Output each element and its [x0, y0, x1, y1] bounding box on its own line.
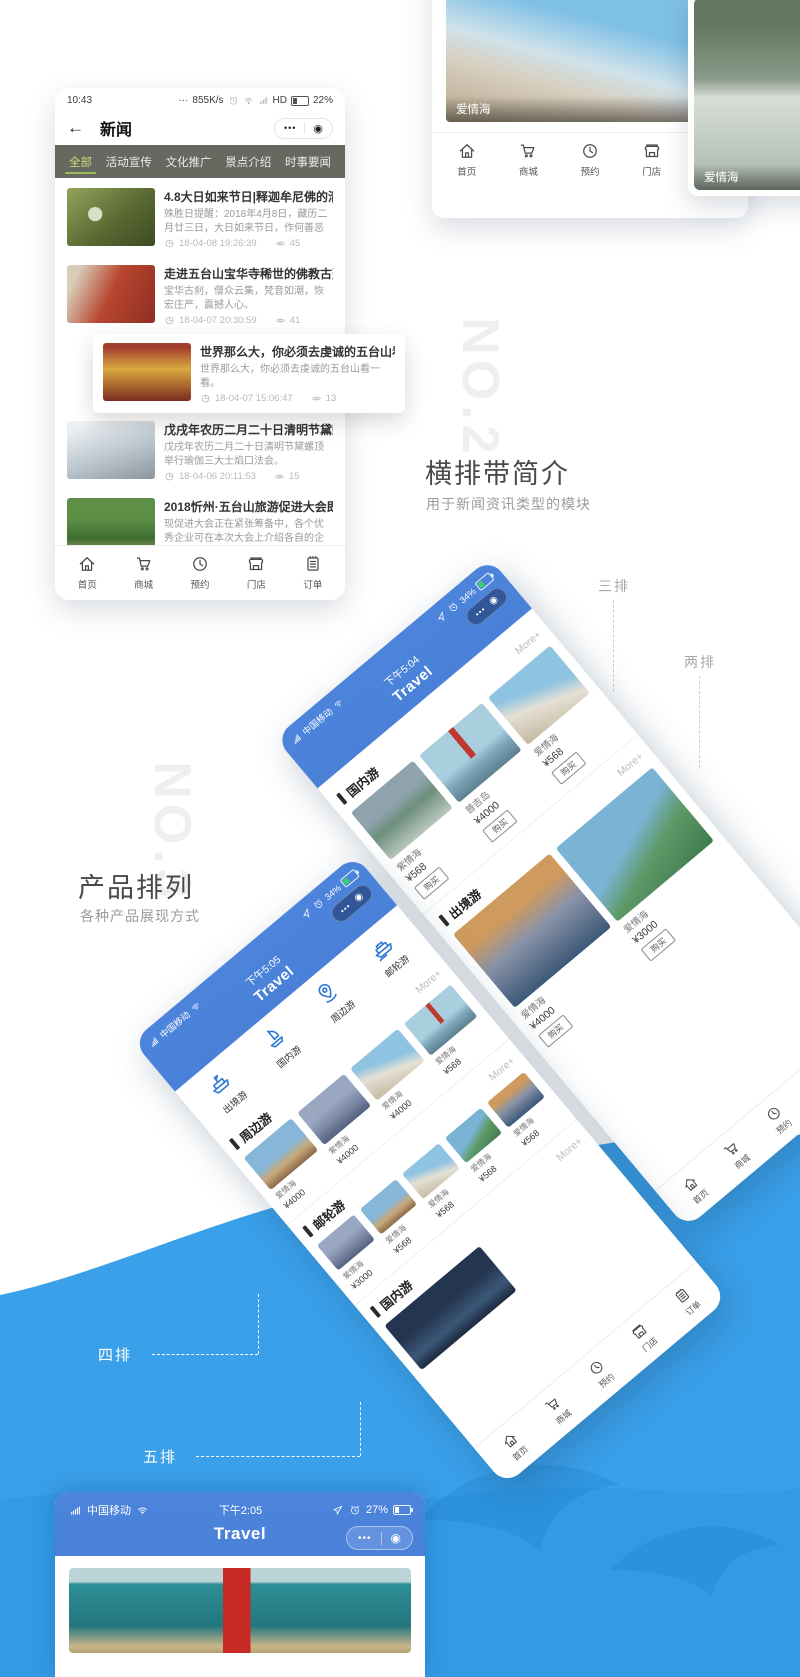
news-item-featured[interactable]: 世界那么大，你必须去虔诚的五台山看 世界那么大，你必须去虔诚的五台山看一看。 1…	[93, 334, 405, 413]
home-icon	[77, 554, 97, 574]
clock-icon	[190, 554, 210, 574]
tab-all[interactable]: 全部	[67, 145, 94, 178]
watermark-no2: NO.2	[454, 308, 506, 468]
tabbar-label: 商城	[519, 164, 538, 178]
news-desc: 殊胜日提醒：2018年4月8日，藏历二月廿三日，大日如来节日，作何善恶成亿倍…	[164, 208, 333, 236]
views-icon	[275, 315, 286, 326]
tab-current[interactable]: 时事要闻	[283, 145, 333, 178]
tabbar-label: 预约	[580, 164, 599, 178]
news-time: 18-04-07 20:30:59	[179, 315, 257, 326]
news-phone-mockup: 10:43 ··· 855K/s HD 22% ← 新闻 ••• ◉ 全部 活动…	[55, 88, 345, 600]
tabbar-label: 首页	[78, 577, 97, 591]
news-nav-bar: ← 新闻 ••• ◉	[55, 109, 345, 145]
tabbar-item-home[interactable]: 首页	[436, 141, 498, 178]
signal-icon	[258, 95, 269, 106]
back-arrow-icon[interactable]: ←	[67, 118, 84, 138]
more-link[interactable]: More+	[554, 1135, 585, 1164]
news-title: 2018忻州·五台山旅游促进大会即将召	[164, 498, 333, 515]
news-title: 世界那么大，你必须去虔诚的五台山看	[200, 343, 395, 360]
news-status-bar: 10:43 ··· 855K/s HD 22%	[55, 88, 345, 109]
callout-four-line-h	[152, 1354, 258, 1355]
lighthouse-photo-card[interactable]	[69, 1568, 411, 1653]
news-desc: 戊戌年农历二月二十日清明节黛螺顶举行瑜伽三大士焰口法会。	[164, 441, 333, 469]
gallery-caption: 爱情海	[694, 164, 800, 190]
status-battery: 22%	[313, 95, 333, 106]
nav-arrow-icon	[332, 1504, 344, 1516]
section3-subtitle: 各种产品展现方式	[80, 906, 200, 926]
clock-icon	[580, 141, 600, 161]
callout-five-line-v	[360, 1402, 361, 1456]
status-dots: ···	[178, 95, 188, 106]
gallery-image: 爱情海	[694, 0, 800, 190]
tabbar-label: 首页	[457, 164, 476, 178]
travel-phone-c: 中国移动 下午2:05 27% Travel ••• ◉	[55, 1492, 425, 1677]
status-time: 下午2:05	[219, 1502, 262, 1518]
menu-dots-icon[interactable]: •••	[358, 1533, 372, 1544]
callout-two-rows: 两排	[684, 652, 716, 672]
views-icon	[311, 393, 322, 404]
cart-icon	[134, 554, 154, 574]
battery-percent: 27%	[366, 1504, 388, 1516]
alarm-icon	[349, 1504, 361, 1516]
status-net-speed: 855K/s	[192, 95, 223, 106]
views-icon	[274, 471, 285, 482]
time-icon	[164, 471, 175, 482]
tab-culture[interactable]: 文化推广	[164, 145, 214, 178]
news-thumbnail	[67, 188, 155, 246]
store-icon	[642, 141, 662, 161]
more-link[interactable]: More+	[413, 967, 444, 996]
tabbar-label: 门店	[642, 164, 661, 178]
views-icon	[275, 238, 286, 249]
callout-two-line	[699, 676, 700, 768]
alarm-icon	[228, 95, 239, 106]
tabbar-item-order[interactable]: 订单	[285, 554, 341, 591]
news-desc: 现促进大会正在紧张筹备中，各个优秀企业可在本次大会上介绍各自的企业文化等，	[164, 518, 333, 546]
tabbar-item-clock[interactable]: 预约	[172, 554, 228, 591]
battery-icon	[393, 1505, 411, 1515]
menu-dots-icon[interactable]: •••	[338, 901, 353, 915]
wifi-icon	[243, 95, 254, 106]
news-desc: 宝华古刹，僧众云集，梵音如潮，恢宏庄严，震撼人心。	[164, 285, 333, 313]
order-icon	[303, 554, 323, 574]
wifi-icon	[136, 1504, 149, 1517]
tabbar-label: 门店	[247, 577, 266, 591]
time-icon	[200, 393, 211, 404]
dolphin-watermark	[380, 1400, 800, 1630]
miniprogram-capsule[interactable]: ••• ◉	[346, 1526, 413, 1550]
news-thumbnail	[67, 421, 155, 479]
target-icon[interactable]: ◉	[487, 594, 501, 608]
section2-subtitle: 用于新闻资讯类型的模块	[426, 494, 591, 514]
news-views: 45	[290, 238, 301, 249]
news-time: 18-04-06 20:11:53	[179, 471, 256, 482]
tabbar-item-store[interactable]: 门店	[228, 554, 284, 591]
target-icon[interactable]: ◉	[305, 122, 323, 135]
travel-c-header: 中国移动 下午2:05 27% Travel ••• ◉	[55, 1492, 425, 1556]
tabbar-item-clock[interactable]: 预约	[559, 141, 621, 178]
time-icon	[164, 238, 175, 249]
callout-four-rows: 四排	[98, 1344, 132, 1365]
news-item[interactable]: 走进五台山宝华寺稀世的佛教古建筑 宝华古刹，僧众云集，梵音如潮，恢宏庄严，震撼人…	[65, 257, 335, 334]
news-title: 走进五台山宝华寺稀世的佛教古建筑	[164, 265, 333, 282]
target-icon[interactable]: ◉	[352, 890, 366, 904]
news-desc: 世界那么大，你必须去虔诚的五台山看一看。	[200, 363, 395, 391]
news-thumbnail	[67, 265, 155, 323]
news-title: 戊戌年农历二月二十日清明节黛螺顶举	[164, 421, 333, 438]
callout-five-rows: 五排	[143, 1446, 177, 1467]
tabbar-item-home[interactable]: 首页	[59, 554, 115, 591]
news-category-tabs: 全部 活动宣传 文化推广 景点介绍 时事要闻	[55, 145, 345, 178]
bottom-tabbar: 首页商城预约门店订单	[55, 545, 345, 600]
news-item[interactable]: 4.8大日如来节日|释迦牟尼佛的清净报 殊胜日提醒：2018年4月8日，藏历二月…	[65, 180, 335, 257]
home-icon	[457, 141, 477, 161]
section2-title: 横排带简介	[425, 452, 570, 491]
menu-dots-icon[interactable]: •••	[473, 605, 488, 619]
page-title: 新闻	[100, 116, 132, 140]
tabbar-item-cart[interactable]: 商城	[498, 141, 560, 178]
callout-three-line	[613, 600, 614, 692]
more-link[interactable]: More+	[513, 628, 544, 657]
status-hd: HD	[273, 95, 287, 106]
cart-icon	[518, 141, 538, 161]
menu-dots-icon[interactable]: •••	[284, 123, 304, 133]
news-time: 18-04-08 19:26:39	[179, 238, 257, 249]
callout-five-line-h	[196, 1456, 360, 1457]
status-time: 10:43	[67, 95, 92, 106]
time-icon	[164, 315, 175, 326]
news-views: 15	[289, 471, 300, 482]
tabbar-label: 商城	[134, 577, 153, 591]
news-time: 18-04-07 15:06:47	[215, 393, 293, 404]
gallery-side-card[interactable]: 爱情海	[688, 0, 800, 196]
tabbar-item-cart[interactable]: 商城	[115, 554, 171, 591]
design-showcase-page: NO.2 NO.3 横排带简介 用于新闻资讯类型的模块 产品排列 各种产品展现方…	[0, 0, 800, 1677]
news-thumbnail	[103, 343, 191, 401]
miniprogram-capsule[interactable]: ••• ◉	[274, 118, 333, 139]
callout-three-rows: 三排	[598, 576, 630, 596]
callout-four-line-v	[258, 1294, 259, 1354]
store-icon	[246, 554, 266, 574]
more-link[interactable]: More+	[615, 750, 646, 779]
carrier: 中国移动	[87, 1502, 131, 1518]
tab-activity[interactable]: 活动宣传	[104, 145, 154, 178]
news-views: 13	[326, 393, 337, 404]
tabbar-label: 订单	[303, 577, 322, 591]
news-title: 4.8大日如来节日|释迦牟尼佛的清净报	[164, 188, 333, 205]
tab-scenic[interactable]: 景点介绍	[223, 145, 273, 178]
news-views: 41	[290, 315, 301, 326]
target-icon[interactable]: ◉	[391, 1531, 401, 1545]
more-link[interactable]: More+	[486, 1054, 517, 1083]
tabbar-label: 预约	[191, 577, 210, 591]
battery-icon	[291, 96, 309, 106]
news-item[interactable]: 戊戌年农历二月二十日清明节黛螺顶举 戊戌年农历二月二十日清明节黛螺顶举行瑜伽三大…	[65, 413, 335, 490]
news-list: 4.8大日如来节日|释迦牟尼佛的清净报 殊胜日提醒：2018年4月8日，藏历二月…	[55, 178, 345, 567]
section3-title: 产品排列	[78, 866, 194, 905]
signal-icon	[69, 1504, 82, 1517]
tabbar-item-store[interactable]: 门店	[621, 141, 683, 178]
